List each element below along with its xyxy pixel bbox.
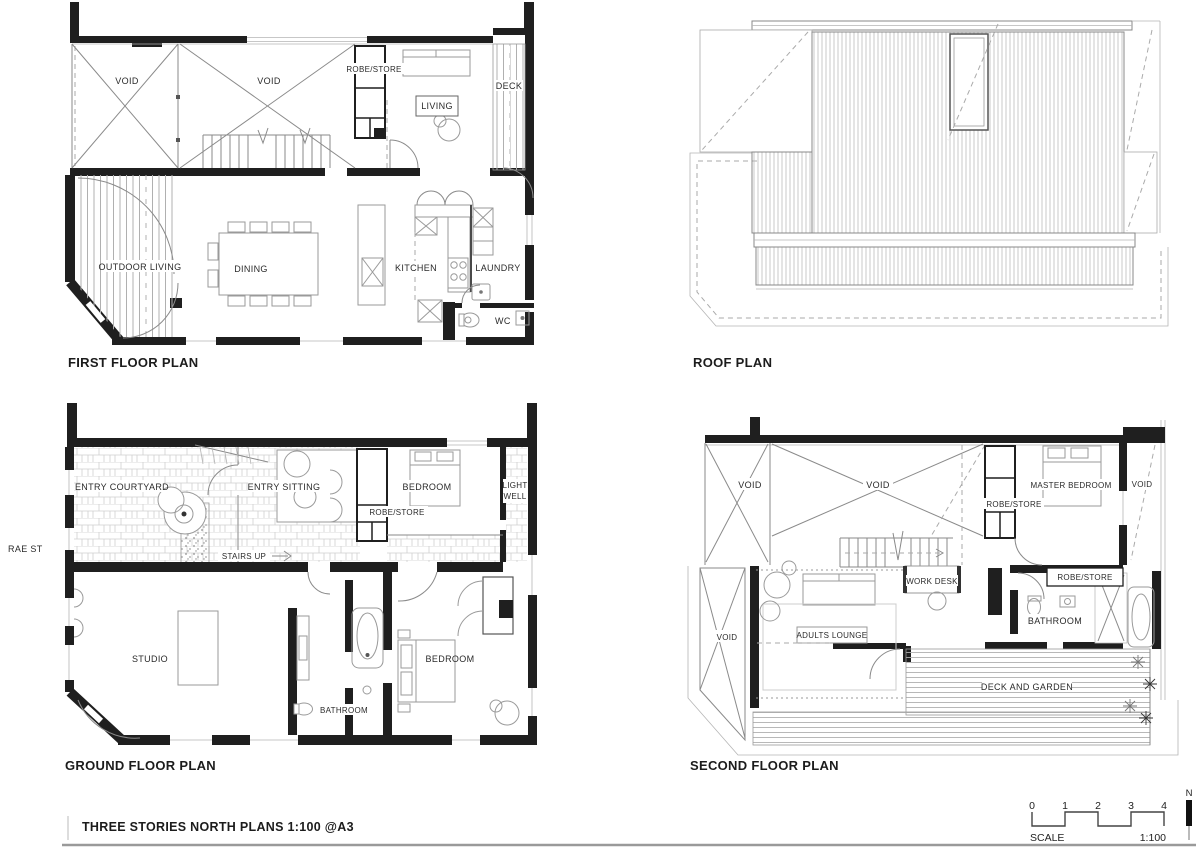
room-label: LIGHT [502,481,527,490]
lower-roof [756,247,1133,285]
ground-floor-plan-title: GROUND FLOOR PLAN [65,758,216,773]
roof-plan-title: ROOF PLAN [693,355,772,370]
room-label: ROBE/STORE [1057,573,1112,582]
roof-plan: ROOF PLAN [690,21,1168,370]
kitchen-fittings [358,191,473,322]
bed-icon [1043,446,1101,506]
room-label: MASTER BEDROOM [1030,481,1111,490]
room-label: VOID [738,480,762,490]
room-label: LIVING [421,101,453,111]
plant-icon [764,572,790,598]
first-floor-stairs [203,128,330,168]
studio-table-icon [178,611,218,685]
room-label: BEDROOM [426,654,475,664]
title-block: THREE STORIES NORTH PLANS 1:100 @A3 0 1 … [62,788,1196,845]
room-label: ROBE/STORE [986,500,1041,509]
first-floor-plan-title: FIRST FLOOR PLAN [68,355,198,370]
scale-tick: 0 [1029,800,1035,812]
work-desk-furniture [903,566,961,610]
north-label: N [1186,788,1193,799]
room-label: ROBE/STORE [346,65,401,74]
door-arc [308,572,330,594]
room-label: DECK [496,81,522,91]
rear-bedroom-furniture [398,577,519,725]
room-label: OUTDOOR LIVING [99,262,182,272]
room-label: ROBE/STORE [369,508,424,517]
plans-drawing: VOID VOID ROBE/STORE LIVING DECK OUTDOOR… [0,0,1200,857]
second-floor-stairs [756,531,955,570]
room-label: WC [495,316,511,326]
scale-label: SCALE [1030,832,1064,844]
room-label: KITCHEN [395,263,437,273]
room-label: VOID [1132,480,1153,489]
room-label: DECK AND GARDEN [981,682,1073,692]
front-bedroom-furniture [387,450,503,535]
room-label: ADULTS LOUNGE [797,631,868,640]
ground-robe-store-cabinet [357,449,387,541]
room-label: WORK DESK [906,577,958,586]
room-label: ENTRY COURTYARD [75,482,169,492]
room-label: VOID [717,633,738,642]
room-label: BEDROOM [403,482,452,492]
scale-tick: 2 [1095,800,1101,812]
plant-icon [438,119,460,141]
door-arc [1018,573,1044,599]
adults-lounge-furniture [757,561,896,690]
drawing-title: THREE STORIES NORTH PLANS 1:100 @A3 [82,820,354,834]
deck-area [493,44,525,170]
skylight [950,34,988,130]
architectural-sheet: VOID VOID ROBE/STORE LIVING DECK OUTDOOR… [0,0,1200,857]
door-arc [390,140,418,168]
plant-icon [495,701,519,725]
room-label: LAUNDRY [475,263,520,273]
scale-ratio: 1:100 [1140,832,1166,844]
room-label: STAIRS UP [222,552,266,561]
room-label: BATHROOM [320,706,368,715]
second-floor-plan: VOID VOID ROBE/STORE MASTER BEDROOM VOID… [688,417,1178,773]
room-label: WELL [504,492,527,501]
door-arc [1015,538,1042,565]
room-label: VOID [115,76,139,86]
scale-bar-line [1032,812,1164,826]
scale-tick: 1 [1062,800,1068,812]
room-label: ENTRY SITTING [248,482,321,492]
room-label: VOID [257,76,281,86]
room-label: DINING [234,264,268,274]
door-arc [398,572,437,601]
room-label: BATHROOM [1028,616,1082,626]
ground-bathroom-fittings [294,608,383,715]
north-arrow-icon: N [1186,788,1193,840]
deck-garden-area [753,649,1157,745]
laundry-fittings [472,208,493,300]
room-label: VOID [866,480,890,490]
chair-icon [928,592,946,610]
master-bedroom-furniture [1043,446,1101,506]
scale-bar: 0 1 2 3 4 SCALE 1:100 [1029,800,1167,844]
room-label: STUDIO [132,654,168,664]
basin-icon [1060,596,1075,607]
second-floor-plan-title: SECOND FLOOR PLAN [690,758,839,773]
bed-icon [398,640,455,702]
first-floor-plan: VOID VOID ROBE/STORE LIVING DECK OUTDOOR… [65,2,534,370]
scale-tick: 4 [1161,800,1167,812]
island-bench-icon [358,205,385,305]
street-label: RAE ST [8,544,43,554]
scale-tick: 3 [1128,800,1134,812]
ground-floor-plan: RAE ST [8,403,537,773]
